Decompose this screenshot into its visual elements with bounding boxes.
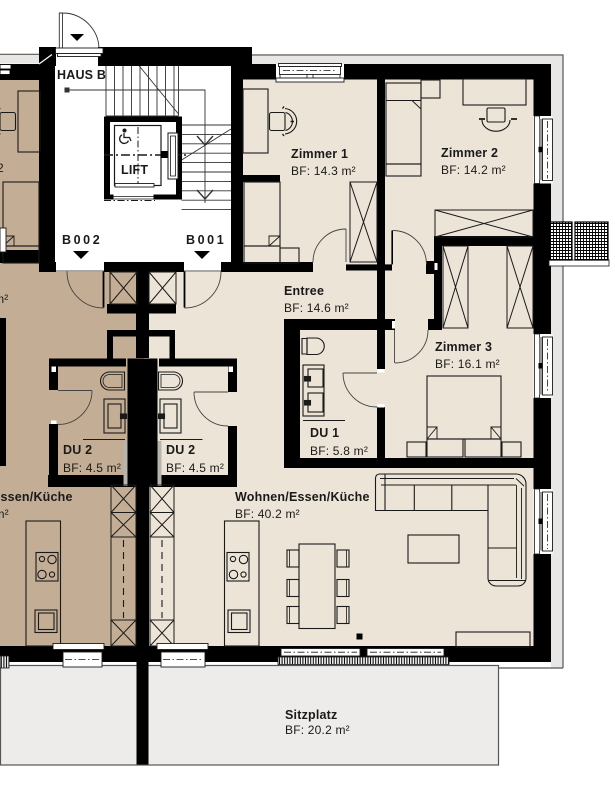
svg-text:Zimmer 3: Zimmer 3 bbox=[435, 340, 492, 354]
svg-text:BF: 14 m²: BF: 14 m² bbox=[0, 292, 8, 306]
svg-text:B002: B002 bbox=[62, 233, 102, 247]
svg-text:LIFT: LIFT bbox=[121, 163, 148, 177]
svg-text:BF: 20.2 m²: BF: 20.2 m² bbox=[285, 723, 350, 737]
svg-text:Zimmer 2: Zimmer 2 bbox=[441, 146, 498, 160]
svg-text:HAUS B: HAUS B bbox=[57, 68, 106, 82]
svg-text:Sitzplatz: Sitzplatz bbox=[285, 708, 338, 722]
svg-text:BF: 4.5 m²: BF: 4.5 m² bbox=[166, 461, 224, 475]
svg-text:2: 2 bbox=[0, 161, 4, 175]
svg-text:BF: 5.8 m²: BF: 5.8 m² bbox=[310, 444, 368, 458]
svg-text:BF: 40.2 m²: BF: 40.2 m² bbox=[0, 507, 9, 521]
svg-text:BF: 14.3 m²: BF: 14.3 m² bbox=[291, 164, 356, 178]
svg-text:Wohnen/Essen/Küche: Wohnen/Essen/Küche bbox=[0, 490, 73, 504]
svg-text:DU 1: DU 1 bbox=[310, 426, 339, 440]
svg-text:BF: 40.2 m²: BF: 40.2 m² bbox=[235, 507, 300, 521]
svg-text:DU 2: DU 2 bbox=[166, 443, 195, 457]
svg-text:BF: 4.5 m²: BF: 4.5 m² bbox=[63, 461, 121, 475]
svg-text:DU 2: DU 2 bbox=[63, 443, 92, 457]
svg-text:BF: 14.6 m²: BF: 14.6 m² bbox=[284, 301, 349, 315]
svg-text:Wohnen/Essen/Küche: Wohnen/Essen/Küche bbox=[235, 490, 370, 504]
svg-text:Zimmer 1: Zimmer 1 bbox=[291, 147, 348, 161]
svg-text:BF: 14.2 m²: BF: 14.2 m² bbox=[441, 163, 506, 177]
svg-text:B001: B001 bbox=[186, 233, 226, 247]
svg-text:Entree: Entree bbox=[284, 284, 324, 298]
svg-text:BF: 16.1 m²: BF: 16.1 m² bbox=[435, 357, 500, 371]
